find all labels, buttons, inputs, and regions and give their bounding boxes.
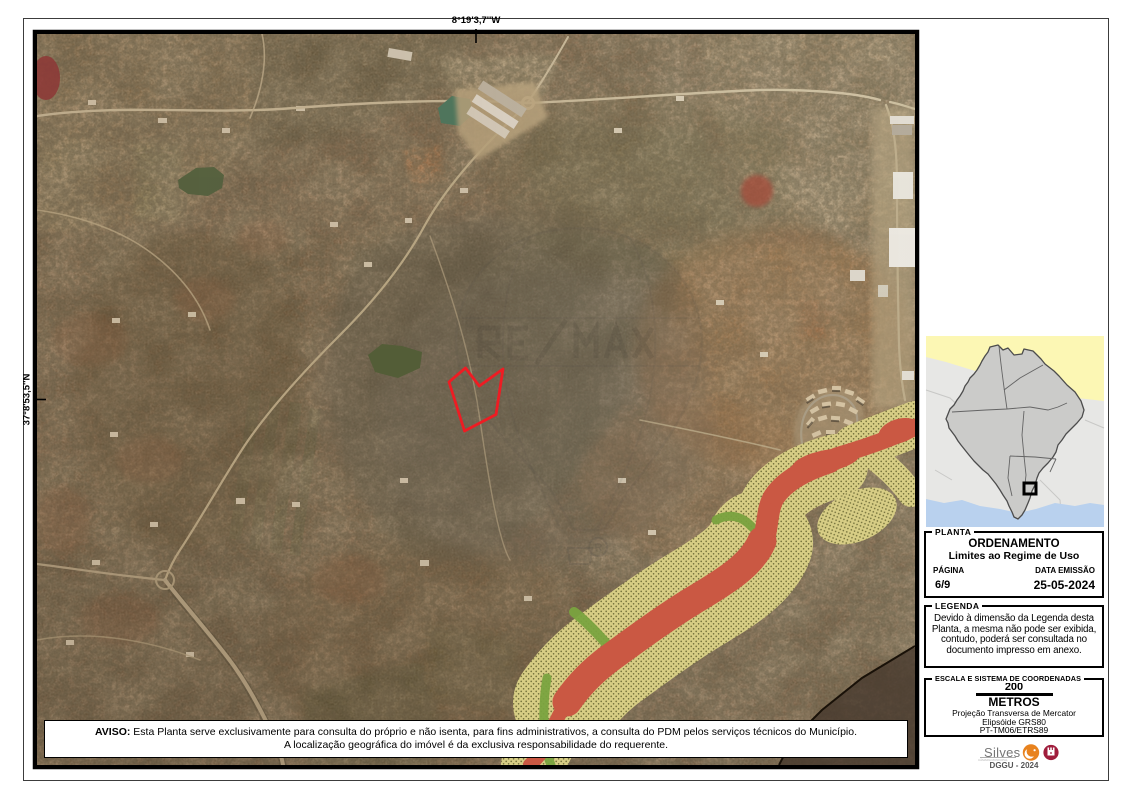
svg-text:R: R: [595, 542, 603, 554]
